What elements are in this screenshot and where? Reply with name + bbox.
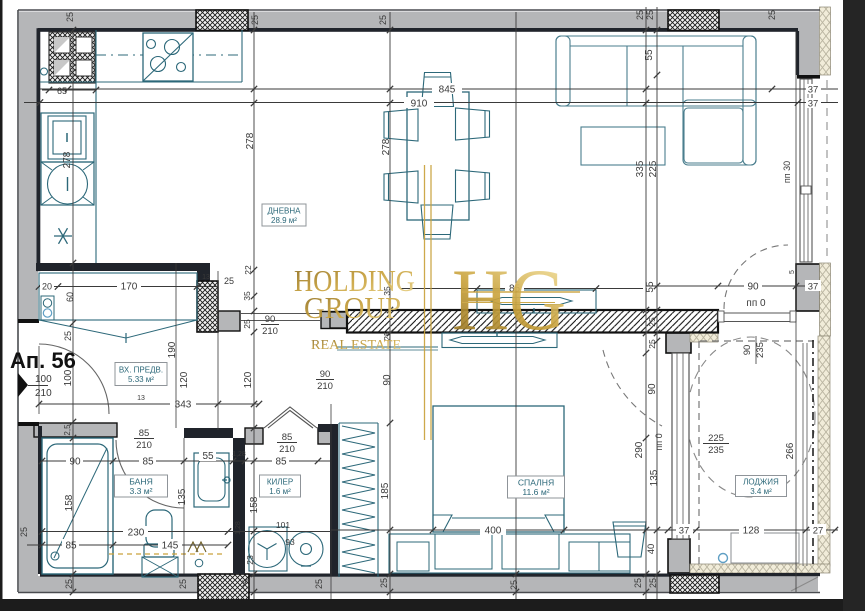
svg-text:28.9 м²: 28.9 м² [271, 216, 297, 225]
svg-text:22: 22 [243, 265, 253, 275]
svg-text:35: 35 [242, 291, 252, 301]
svg-text:845: 845 [439, 85, 456, 96]
svg-text:120: 120 [243, 371, 254, 388]
svg-text:37: 37 [808, 99, 819, 110]
svg-text:ВХ. ПРЕДВ.: ВХ. ПРЕДВ. [119, 366, 163, 375]
svg-text:1.6 м²: 1.6 м² [269, 487, 291, 496]
svg-text:25: 25 [645, 10, 655, 20]
svg-text:210: 210 [317, 381, 333, 392]
svg-text:135: 135 [177, 488, 188, 505]
svg-text:Ап. 56: Ап. 56 [10, 348, 76, 373]
svg-text:55: 55 [645, 281, 656, 293]
svg-text:85: 85 [65, 541, 77, 552]
svg-text:25: 25 [65, 12, 75, 22]
svg-text:210: 210 [136, 440, 152, 451]
svg-text:25: 25 [19, 527, 29, 537]
svg-text:REAL ESTATE: REAL ESTATE [311, 338, 401, 353]
svg-text:25: 25 [648, 578, 658, 588]
svg-text:278: 278 [381, 138, 392, 155]
svg-text:КИЛЕР: КИЛЕР [267, 478, 293, 487]
svg-text:5: 5 [789, 270, 796, 274]
svg-text:1,28: 1,28 [235, 521, 242, 535]
svg-text:пп 0: пп 0 [746, 298, 766, 309]
svg-text:85: 85 [139, 428, 150, 439]
svg-text:СПАЛНЯ: СПАЛНЯ [518, 478, 554, 488]
svg-text:25: 25 [635, 10, 645, 20]
svg-text:20: 20 [42, 282, 52, 292]
svg-text:90: 90 [320, 369, 331, 380]
svg-text:37: 37 [808, 282, 819, 293]
svg-text:93: 93 [285, 537, 295, 547]
svg-text:25: 25 [242, 319, 252, 329]
svg-text:910: 910 [411, 99, 428, 110]
svg-text:235: 235 [755, 342, 766, 358]
svg-text:230: 230 [128, 528, 145, 539]
svg-text:2,5: 2,5 [63, 424, 72, 436]
svg-text:13: 13 [137, 395, 145, 402]
svg-text:90: 90 [742, 345, 753, 356]
svg-text:135: 135 [649, 469, 660, 486]
svg-text:85: 85 [282, 432, 293, 443]
svg-text:25: 25 [241, 579, 251, 589]
svg-text:25: 25 [647, 339, 657, 349]
svg-text:145: 145 [162, 541, 179, 552]
svg-text:пп 30: пп 30 [782, 161, 792, 183]
svg-text:225: 225 [708, 433, 724, 444]
svg-text:25: 25 [64, 579, 74, 589]
svg-text:65: 65 [57, 86, 67, 96]
svg-text:210: 210 [262, 326, 278, 337]
svg-text:GROUP: GROUP [304, 290, 401, 325]
svg-text:25: 25 [314, 579, 324, 589]
svg-text:400: 400 [485, 526, 502, 537]
svg-text:120: 120 [179, 371, 190, 388]
svg-text:25: 25 [509, 580, 519, 590]
svg-text:3.4 м²: 3.4 м² [750, 487, 772, 496]
svg-text:85: 85 [275, 457, 287, 468]
svg-text:25: 25 [224, 276, 234, 286]
svg-text:пп 0: пп 0 [654, 433, 664, 450]
svg-text:225: 225 [648, 160, 659, 177]
svg-text:335: 335 [635, 160, 646, 177]
svg-text:170: 170 [121, 282, 138, 293]
svg-text:90: 90 [69, 457, 81, 468]
svg-text:158: 158 [249, 496, 260, 513]
svg-text:3.3 м²: 3.3 м² [129, 486, 152, 496]
svg-text:100: 100 [35, 374, 52, 385]
svg-text:1,28: 1,28 [232, 451, 246, 458]
svg-text:210: 210 [35, 388, 52, 399]
svg-text:266: 266 [785, 442, 796, 459]
svg-text:25: 25 [378, 15, 388, 25]
svg-text:90: 90 [382, 374, 393, 386]
svg-text:101: 101 [276, 520, 290, 530]
svg-text:11.6 м²: 11.6 м² [522, 487, 549, 497]
svg-text:278: 278 [62, 151, 73, 168]
svg-text:158: 158 [64, 494, 75, 511]
svg-text:55: 55 [644, 49, 655, 61]
svg-text:13: 13 [202, 274, 210, 281]
svg-text:190: 190 [167, 341, 178, 358]
svg-text:5.33 м²: 5.33 м² [128, 375, 154, 384]
svg-text:235: 235 [708, 445, 724, 456]
svg-text:90: 90 [647, 383, 658, 395]
svg-text:55: 55 [202, 451, 214, 462]
svg-text:25: 25 [63, 331, 73, 341]
svg-text:40: 40 [646, 544, 657, 555]
svg-text:25: 25 [767, 10, 777, 20]
svg-text:37: 37 [808, 85, 819, 96]
svg-text:ЛОДЖИЯ: ЛОДЖИЯ [743, 478, 779, 487]
svg-text:27: 27 [813, 526, 824, 537]
svg-text:185: 185 [380, 482, 391, 499]
svg-text:25: 25 [379, 578, 389, 588]
svg-text:БАНЯ: БАНЯ [129, 477, 153, 487]
svg-text:343: 343 [175, 400, 192, 411]
svg-text:290: 290 [634, 441, 645, 458]
svg-text:25: 25 [178, 579, 188, 589]
svg-text:85: 85 [142, 457, 154, 468]
svg-text:23: 23 [245, 555, 255, 565]
svg-text:ДНЕВНА: ДНЕВНА [268, 207, 302, 216]
svg-text:25: 25 [633, 578, 643, 588]
svg-text:210: 210 [279, 444, 295, 455]
svg-text:HG: HG [452, 252, 566, 349]
svg-text:90: 90 [747, 282, 759, 293]
svg-text:60: 60 [65, 292, 75, 302]
svg-text:25: 25 [647, 317, 657, 327]
svg-text:128: 128 [743, 526, 760, 537]
svg-text:25: 25 [250, 15, 260, 25]
svg-text:37: 37 [679, 526, 690, 537]
svg-text:278: 278 [245, 132, 256, 149]
svg-text:90: 90 [265, 314, 276, 325]
